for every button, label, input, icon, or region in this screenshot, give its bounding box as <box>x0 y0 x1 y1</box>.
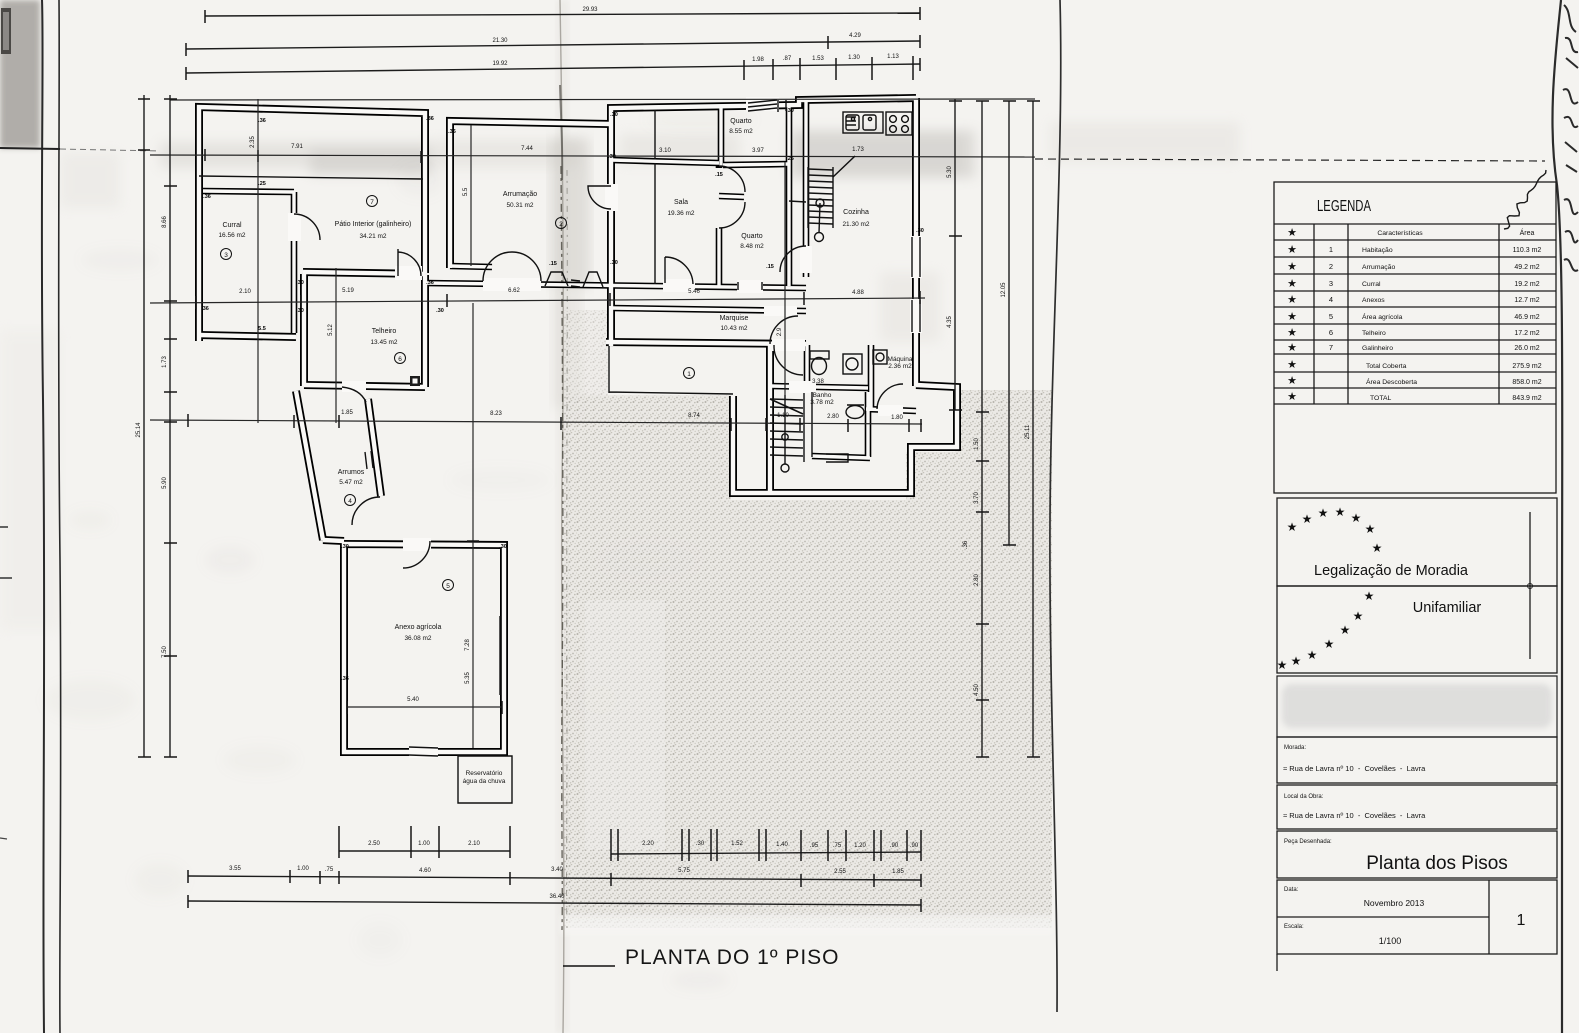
svg-text:1.80: 1.80 <box>891 415 903 421</box>
svg-text:1/100: 1/100 <box>1379 936 1402 946</box>
svg-text:★: ★ <box>1324 637 1335 651</box>
svg-text:7.44: 7.44 <box>521 146 533 152</box>
svg-text:21.30 m2: 21.30 m2 <box>842 221 869 228</box>
svg-text:PLANTA DO 1º PISO: PLANTA DO 1º PISO <box>625 946 840 969</box>
svg-text:4.50: 4.50 <box>974 684 980 696</box>
svg-text:8.55 m2: 8.55 m2 <box>729 128 753 135</box>
svg-text:19.92: 19.92 <box>492 61 508 67</box>
svg-text:.75: .75 <box>833 843 842 849</box>
svg-text:46.9 m2: 46.9 m2 <box>1514 314 1539 321</box>
svg-text:Unifamiliar: Unifamiliar <box>1413 600 1482 616</box>
svg-text:Quarto: Quarto <box>741 233 763 240</box>
svg-text:.30: .30 <box>916 228 924 234</box>
svg-text:4: 4 <box>348 498 352 505</box>
svg-text:4.29: 4.29 <box>849 33 861 39</box>
svg-text:7: 7 <box>370 199 374 206</box>
svg-text:.36: .36 <box>258 118 266 124</box>
svg-text:Banho: Banho <box>813 392 832 399</box>
svg-text:5: 5 <box>446 583 450 590</box>
svg-text:13.45 m2: 13.45 m2 <box>370 339 397 346</box>
svg-text:Quarto: Quarto <box>730 118 752 125</box>
svg-text:Novembro 2013: Novembro 2013 <box>1364 898 1425 908</box>
svg-text:2.80: 2.80 <box>974 574 980 586</box>
svg-text:7.28: 7.28 <box>465 639 471 651</box>
svg-text:Telheiro: Telheiro <box>372 328 397 335</box>
svg-text:Total Coberta: Total Coberta <box>1366 363 1407 370</box>
svg-text:★: ★ <box>1287 520 1298 534</box>
svg-text:2.9: 2.9 <box>777 327 783 336</box>
svg-text:5.75: 5.75 <box>678 868 690 874</box>
svg-text:3: 3 <box>1329 279 1333 288</box>
svg-text:.30: .30 <box>296 280 304 286</box>
svg-text:19.36 m2: 19.36 m2 <box>667 210 694 217</box>
svg-text:.36: .36 <box>448 129 456 135</box>
svg-text:★: ★ <box>1351 511 1362 525</box>
svg-text:3.55: 3.55 <box>229 866 241 872</box>
svg-text:.36: .36 <box>201 306 209 312</box>
svg-text:★: ★ <box>1287 294 1297 306</box>
svg-text:3.10: 3.10 <box>659 148 671 154</box>
svg-text:Cozinha: Cozinha <box>843 209 869 216</box>
svg-text:5.90: 5.90 <box>162 477 168 489</box>
svg-text:1.50: 1.50 <box>974 438 980 450</box>
svg-text:.36: .36 <box>963 540 969 549</box>
svg-text:Galinheiro: Galinheiro <box>1362 345 1393 352</box>
svg-text:8.48 m2: 8.48 m2 <box>740 243 764 250</box>
svg-text:.30: .30 <box>341 544 349 550</box>
svg-text:Telheiro: Telheiro <box>1362 330 1386 337</box>
svg-text:5.5: 5.5 <box>463 187 469 196</box>
svg-text:5.12: 5.12 <box>328 324 334 336</box>
svg-text:TOTAL: TOTAL <box>1370 395 1391 402</box>
svg-text:25.11: 25.11 <box>1025 424 1031 439</box>
svg-text:8.23: 8.23 <box>490 411 502 417</box>
svg-text:★: ★ <box>1318 506 1329 520</box>
svg-text:★: ★ <box>1307 648 1318 662</box>
svg-text:2: 2 <box>559 221 563 228</box>
svg-text:1.52: 1.52 <box>731 841 743 847</box>
svg-text:1.53: 1.53 <box>812 56 824 62</box>
svg-text:110.3 m2: 110.3 m2 <box>1513 247 1542 254</box>
svg-text:.36: .36 <box>426 116 434 122</box>
svg-text:36.08 m2: 36.08 m2 <box>404 635 431 642</box>
svg-text:6.62: 6.62 <box>508 288 520 294</box>
svg-text:★: ★ <box>1277 658 1288 672</box>
svg-text:.25: .25 <box>258 181 266 187</box>
svg-text:5.40: 5.40 <box>407 697 419 703</box>
svg-text:6: 6 <box>1329 328 1333 337</box>
svg-text:Habitação: Habitação <box>1362 247 1393 254</box>
svg-text:12.05: 12.05 <box>1001 282 1007 298</box>
svg-text:.36: .36 <box>341 676 349 682</box>
svg-text:25.14: 25.14 <box>136 422 142 438</box>
svg-text:Escala:: Escala: <box>1284 924 1304 930</box>
svg-text:.36: .36 <box>203 194 211 200</box>
svg-text:.87: .87 <box>783 56 792 62</box>
svg-text:Máquina: Máquina <box>888 356 913 363</box>
svg-text:★: ★ <box>1353 609 1364 623</box>
svg-text:5.5: 5.5 <box>258 326 266 332</box>
svg-text:3: 3 <box>224 252 228 259</box>
svg-text:.30: .30 <box>296 308 304 314</box>
svg-text:Área Descoberta: Área Descoberta <box>1366 377 1417 386</box>
svg-text:Arrumação: Arrumação <box>503 191 537 198</box>
svg-text:17.2 m2: 17.2 m2 <box>1514 330 1539 337</box>
svg-text:.30: .30 <box>786 108 794 114</box>
svg-text:12.7 m2: 12.7 m2 <box>1514 297 1539 304</box>
svg-text:49.2 m2: 49.2 m2 <box>1514 264 1539 271</box>
svg-text:2.10: 2.10 <box>468 841 480 847</box>
svg-text:5: 5 <box>1329 312 1333 321</box>
svg-text:.30: .30 <box>610 260 618 266</box>
svg-text:4.60: 4.60 <box>419 868 431 874</box>
svg-text:2: 2 <box>1329 262 1333 271</box>
svg-text:★: ★ <box>1287 359 1297 371</box>
svg-text:≈ Rua de Lavra nº 10 - Covel: ≈ Rua de Lavra nº 10 - Covelães - Lavra <box>1283 811 1426 820</box>
svg-text:21.30: 21.30 <box>492 38 508 44</box>
svg-text:1: 1 <box>1329 245 1333 254</box>
svg-text:.95: .95 <box>810 843 819 849</box>
svg-text:26.0 m2: 26.0 m2 <box>1514 345 1539 352</box>
svg-text:Sala: Sala <box>674 199 688 206</box>
svg-text:34.21 m2: 34.21 m2 <box>359 233 386 240</box>
svg-text:3.70: 3.70 <box>974 492 980 504</box>
svg-text:7: 7 <box>1329 343 1333 352</box>
svg-text:16.56 m2: 16.56 m2 <box>218 232 245 239</box>
svg-text:843.9 m2: 843.9 m2 <box>1512 395 1541 402</box>
svg-text:1.13: 1.13 <box>887 54 899 60</box>
svg-text:3.78 m2: 3.78 m2 <box>810 399 834 406</box>
svg-text:.25: .25 <box>786 156 794 162</box>
svg-text:★: ★ <box>1287 327 1297 339</box>
svg-text:5.19: 5.19 <box>342 288 354 294</box>
svg-text:3.38: 3.38 <box>812 379 824 385</box>
svg-text:Anexos: Anexos <box>1362 297 1385 304</box>
svg-text:★: ★ <box>1287 391 1297 403</box>
svg-text:★: ★ <box>1287 244 1297 256</box>
svg-text:1.00: 1.00 <box>418 841 430 847</box>
svg-text:1: 1 <box>1517 912 1526 929</box>
svg-text:★: ★ <box>1365 522 1376 536</box>
svg-text:2.55: 2.55 <box>834 869 846 875</box>
svg-text:275.9 m2: 275.9 m2 <box>1512 363 1541 370</box>
svg-text:5.30: 5.30 <box>947 166 953 178</box>
svg-text:Morada:: Morada: <box>1284 745 1306 751</box>
svg-text:.30: .30 <box>696 841 705 847</box>
svg-text:Área: Área <box>1520 228 1535 237</box>
svg-text:2.50: 2.50 <box>368 841 380 847</box>
svg-text:★: ★ <box>1364 589 1375 603</box>
svg-text:36.40: 36.40 <box>549 894 565 900</box>
svg-text:★: ★ <box>1287 311 1297 323</box>
svg-text:Marquise: Marquise <box>720 315 749 322</box>
svg-text:.75: .75 <box>325 867 334 873</box>
svg-text:★: ★ <box>1372 541 1383 555</box>
svg-text:4.88: 4.88 <box>852 290 864 296</box>
svg-text:8.74: 8.74 <box>688 413 700 419</box>
svg-text:Curral: Curral <box>222 222 242 229</box>
svg-text:1.30: 1.30 <box>848 55 860 61</box>
svg-text:2.35: 2.35 <box>250 136 256 148</box>
svg-text:Planta dos Pisos: Planta dos Pisos <box>1366 853 1508 874</box>
svg-text:6: 6 <box>398 356 402 363</box>
svg-text:2.10: 2.10 <box>239 289 251 295</box>
svg-text:Arrumação: Arrumação <box>1362 264 1395 271</box>
svg-text:★: ★ <box>1291 654 1302 668</box>
svg-text:4.35: 4.35 <box>947 316 953 328</box>
svg-text:.30: .30 <box>608 154 616 160</box>
svg-text:4: 4 <box>1329 295 1333 304</box>
svg-text:.30: .30 <box>610 112 618 118</box>
svg-text:Anexo agrícola: Anexo agrícola <box>395 624 442 631</box>
svg-text:1.85: 1.85 <box>341 410 353 416</box>
svg-text:.15: .15 <box>549 261 557 267</box>
svg-text:Reservatório: Reservatório <box>466 770 503 777</box>
svg-text:7.50: 7.50 <box>162 646 168 658</box>
svg-text:1.73: 1.73 <box>852 147 864 153</box>
svg-text:★: ★ <box>1287 227 1297 239</box>
svg-text:1.98: 1.98 <box>752 57 764 63</box>
svg-text:★: ★ <box>1340 623 1351 637</box>
svg-text:★: ★ <box>1287 261 1297 273</box>
svg-text:.30: .30 <box>499 544 507 550</box>
svg-text:.15: .15 <box>766 264 774 270</box>
svg-text:1.85: 1.85 <box>892 869 904 875</box>
svg-text:50.31 m2: 50.31 m2 <box>506 202 533 209</box>
svg-text:5.46: 5.46 <box>688 289 700 295</box>
svg-text:★: ★ <box>1287 375 1297 387</box>
svg-text:água da chuva: água da chuva <box>463 778 506 785</box>
svg-text:≈ Rua de Lavra nº 10 - Covel: ≈ Rua de Lavra nº 10 - Covelães - Lavra <box>1283 764 1426 773</box>
svg-text:1.20: 1.20 <box>854 843 866 849</box>
svg-text:10.43 m2: 10.43 m2 <box>720 325 747 332</box>
svg-text:★: ★ <box>1335 505 1346 519</box>
svg-text:2.20: 2.20 <box>642 841 654 847</box>
svg-text:8.66: 8.66 <box>162 216 168 228</box>
svg-text:★: ★ <box>1287 342 1297 354</box>
svg-text:1.73: 1.73 <box>162 356 168 368</box>
svg-text:LEGENDA: LEGENDA <box>1317 198 1371 215</box>
svg-text:Local da Obra:: Local da Obra: <box>1284 794 1324 800</box>
svg-text:19.2 m2: 19.2 m2 <box>1514 281 1539 288</box>
svg-text:.36: .36 <box>426 280 434 286</box>
svg-text:1.40: 1.40 <box>776 842 788 848</box>
svg-text:.15: .15 <box>715 172 723 178</box>
svg-text:5.35: 5.35 <box>465 672 471 684</box>
svg-text:1.00: 1.00 <box>297 866 309 872</box>
svg-text:Data:: Data: <box>1284 887 1299 893</box>
svg-text:5.47 m2: 5.47 m2 <box>339 479 363 486</box>
svg-text:Arrumos: Arrumos <box>338 469 365 476</box>
svg-text:Área agrícola: Área agrícola <box>1362 312 1403 321</box>
svg-text:2.80: 2.80 <box>827 414 839 420</box>
svg-text:3.40: 3.40 <box>551 867 563 873</box>
svg-text:★: ★ <box>1302 512 1313 526</box>
svg-text:3.97: 3.97 <box>752 148 764 154</box>
svg-text:.90: .90 <box>910 843 919 849</box>
svg-text:.30: .30 <box>436 308 444 314</box>
svg-text:1: 1 <box>687 371 691 378</box>
svg-text:Peça Desenhada:: Peça Desenhada: <box>1284 839 1332 845</box>
svg-text:★: ★ <box>1287 278 1297 290</box>
svg-text:2.36 m2: 2.36 m2 <box>888 363 912 370</box>
svg-text:Características: Características <box>1377 230 1423 237</box>
svg-text:858.0 m2: 858.0 m2 <box>1512 379 1541 386</box>
svg-text:.90: .90 <box>890 843 899 849</box>
svg-text:7.91: 7.91 <box>291 144 303 150</box>
svg-text:Legalização de Moradia: Legalização de Moradia <box>1314 563 1469 579</box>
svg-text:Pátio Interior (galinheiro): Pátio Interior (galinheiro) <box>335 221 412 228</box>
svg-text:29.93: 29.93 <box>582 7 598 13</box>
svg-text:Curral: Curral <box>1362 281 1381 288</box>
